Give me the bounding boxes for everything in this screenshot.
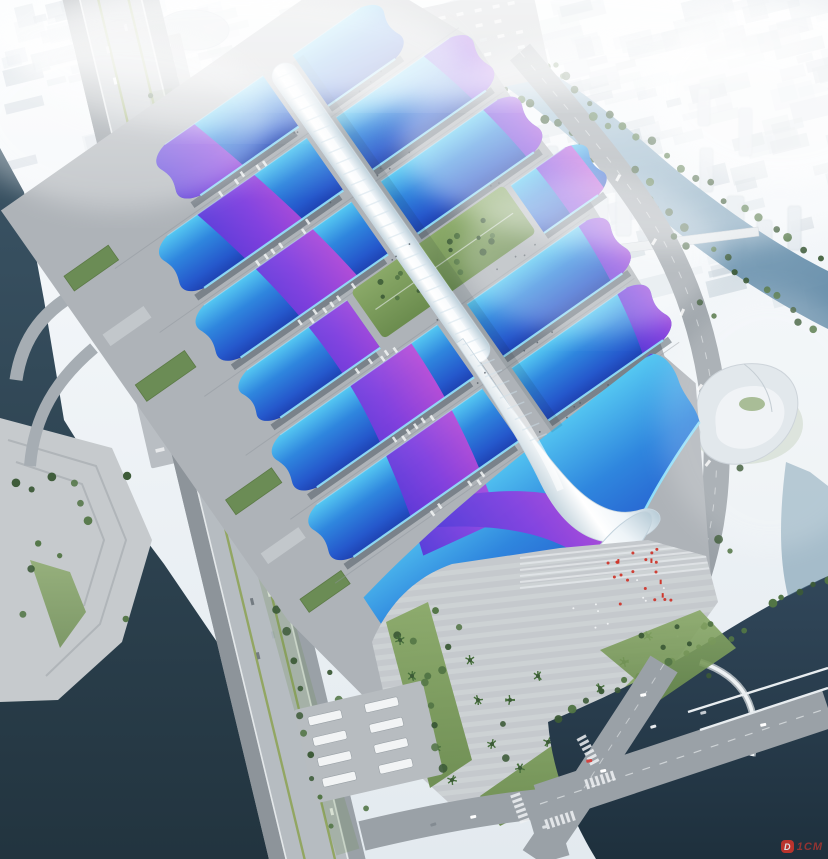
tree [687,641,692,646]
tree [800,247,807,254]
tree [606,111,614,119]
tree [500,721,506,727]
red-figure [650,551,653,554]
tree [438,666,446,674]
red-figure [655,570,658,573]
tree [797,589,804,596]
tree [282,627,291,636]
tree [711,247,716,252]
tower [698,88,710,126]
tree [587,101,592,106]
tree [410,638,417,645]
tree [743,278,749,284]
tree [568,705,577,714]
red-figure [620,574,623,577]
tree [764,286,771,293]
tree [540,115,549,124]
tree [682,242,690,250]
tree [660,645,665,650]
tree [741,205,749,213]
tree [12,478,21,487]
tree [502,754,510,762]
tree [29,486,35,492]
tree [583,698,589,704]
pedestrian-dot [595,603,597,605]
tree [456,624,462,630]
tree [632,133,639,140]
tree [721,198,727,204]
tree [648,137,656,145]
tree [714,535,723,544]
tree [123,616,129,622]
tree [35,540,41,546]
pedestrian-dot [594,627,596,629]
red-flag [662,593,664,598]
tree [363,806,369,812]
red-flag [650,558,652,563]
tree [329,824,334,829]
tree [553,62,558,67]
tree [675,624,680,629]
tree [631,166,639,174]
tree [711,313,716,318]
tree [445,644,451,650]
aerial-city-rendering [0,0,828,859]
tree [778,595,784,601]
red-figure [644,558,647,561]
red-flag [617,559,619,564]
red-figure [655,561,658,564]
pedestrian-dot [607,623,609,625]
tree [736,464,743,471]
tree [47,473,56,482]
tree [27,565,34,572]
red-figure [607,562,610,565]
tree [790,307,796,313]
tree [589,112,598,121]
red-flag [660,580,662,585]
tree [754,213,762,221]
tree [725,254,732,261]
tree [818,255,824,261]
tree [677,165,685,173]
red-figure [644,587,647,590]
tree [77,500,84,507]
tree [783,233,792,242]
tree [526,99,534,107]
red-figure [655,548,658,551]
tree [773,292,780,299]
tree [148,93,153,98]
tower [739,108,752,156]
tree [706,673,711,678]
tree [598,688,604,694]
tree [615,687,621,693]
tree [794,318,801,325]
pedestrian-dot [597,610,599,612]
tree [732,269,738,275]
pedestrian-dot [642,597,644,599]
tree [424,673,431,680]
tree [707,179,714,186]
tree [680,223,689,232]
tree [327,670,332,675]
pedestrian-dot [645,600,647,602]
red-figure [663,598,666,601]
tree [554,715,562,723]
pedestrian-dot [572,607,574,609]
tree [646,178,654,186]
pedestrian-dot [636,579,638,581]
tower [788,206,801,250]
pedestrian-dot [663,587,665,589]
tree [810,582,815,587]
tree [664,153,670,159]
tree [621,677,627,683]
red-figure [669,599,672,602]
tree [692,175,699,182]
red-figure [631,552,634,555]
tree [727,548,732,553]
tree [57,553,62,558]
red-figure [631,570,634,573]
tree [773,226,780,233]
tree [741,628,747,634]
tree [665,208,673,216]
tree [84,516,93,525]
tree [697,299,703,305]
tree [571,86,579,94]
tree [290,657,297,664]
tree [71,480,78,487]
tree [298,686,304,692]
tree [19,611,26,618]
tree [769,599,778,608]
red-figure [653,598,656,601]
tree [809,326,817,334]
red-figure [619,602,622,605]
tree [671,233,678,240]
tree [432,607,439,614]
tree [123,472,131,480]
tree [618,122,626,130]
tree [638,633,644,639]
tree [605,123,611,129]
red-figure [613,576,616,579]
tree [664,658,672,666]
red-figure [626,579,629,582]
tree [562,72,570,80]
tree [708,621,714,627]
